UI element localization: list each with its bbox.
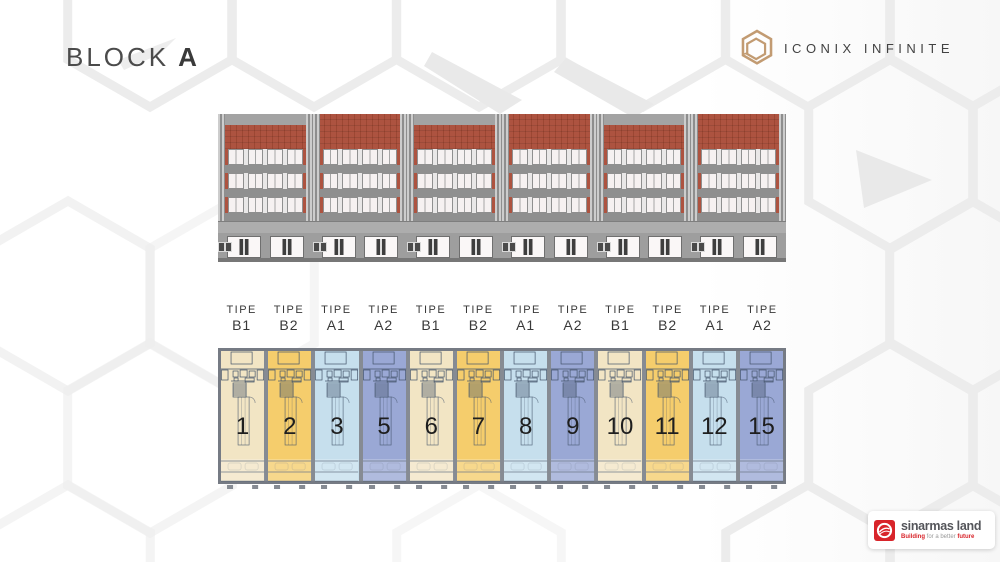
iconix-hexagon-icon	[740, 26, 774, 70]
unit-type-label: TIPEB1	[218, 303, 265, 334]
building-elevation	[218, 114, 786, 262]
unit-type-label: TIPEA1	[502, 303, 549, 334]
unit-number: 2	[268, 413, 311, 441]
unit-cell-1: 1	[221, 351, 264, 481]
unit-number: 7	[457, 413, 500, 441]
elevation-module	[502, 114, 597, 262]
unit-type-label: TIPEB2	[455, 303, 502, 334]
sinarmas-icon	[874, 520, 895, 541]
floor-plan-strip: 1	[218, 348, 786, 484]
elevation-module	[691, 114, 786, 262]
unit-number: 12	[693, 413, 736, 441]
unit-number: 10	[598, 413, 641, 441]
slide: BLOCKA ICONIX INFINITE TIPEB1TIPEB2TIPEA…	[0, 0, 1000, 562]
brand-name: ICONIX INFINITE	[784, 41, 954, 56]
unit-number: 3	[315, 413, 358, 441]
elevation-module	[597, 114, 692, 262]
page-title: BLOCKA	[66, 42, 200, 73]
unit-type-label: TIPEA2	[360, 303, 407, 334]
unit-type-label: TIPEB1	[597, 303, 644, 334]
unit-cell-3: 3	[315, 351, 358, 481]
block-letter: A	[178, 42, 200, 72]
unit-cell-11: 11	[646, 351, 689, 481]
sinarmas-name: sinarmas land	[901, 520, 981, 533]
unit-cell-6: 6	[410, 351, 453, 481]
unit-number: 5	[363, 413, 406, 441]
elevation-module	[218, 114, 313, 262]
sinarmas-text: sinarmas land Building for a better futu…	[901, 520, 981, 541]
unit-type-label: TIPEA2	[549, 303, 596, 334]
unit-cell-7: 7	[457, 351, 500, 481]
unit-cell-2: 2	[268, 351, 311, 481]
block-label: BLOCK	[66, 42, 169, 72]
sinarmas-tagline: Building for a better future	[901, 534, 981, 540]
elevation-module	[407, 114, 502, 262]
unit-cell-8: 8	[504, 351, 547, 481]
unit-cell-5: 5	[363, 351, 406, 481]
unit-type-label: TIPEA1	[313, 303, 360, 334]
unit-number: 8	[504, 413, 547, 441]
unit-type-label: TIPEA1	[691, 303, 738, 334]
unit-type-labels: TIPEB1TIPEB2TIPEA1TIPEA2TIPEB1TIPEB2TIPE…	[218, 303, 786, 334]
unit-number: 9	[551, 413, 594, 441]
unit-type-label: TIPEB1	[407, 303, 454, 334]
unit-cell-12: 12	[693, 351, 736, 481]
unit-number: 1	[221, 413, 264, 441]
unit-number: 15	[740, 413, 783, 441]
unit-cell-15: 15	[740, 351, 783, 481]
brand-logo: ICONIX INFINITE	[740, 26, 954, 70]
sinarmas-land-logo: sinarmas land Building for a better futu…	[868, 511, 995, 549]
unit-number: 11	[646, 413, 689, 441]
elevation-module	[313, 114, 408, 262]
unit-type-label: TIPEB2	[265, 303, 312, 334]
unit-number: 6	[410, 413, 453, 441]
unit-cell-9: 9	[551, 351, 594, 481]
unit-type-label: TIPEB2	[644, 303, 691, 334]
unit-type-label: TIPEA2	[739, 303, 786, 334]
unit-cell-10: 10	[598, 351, 641, 481]
